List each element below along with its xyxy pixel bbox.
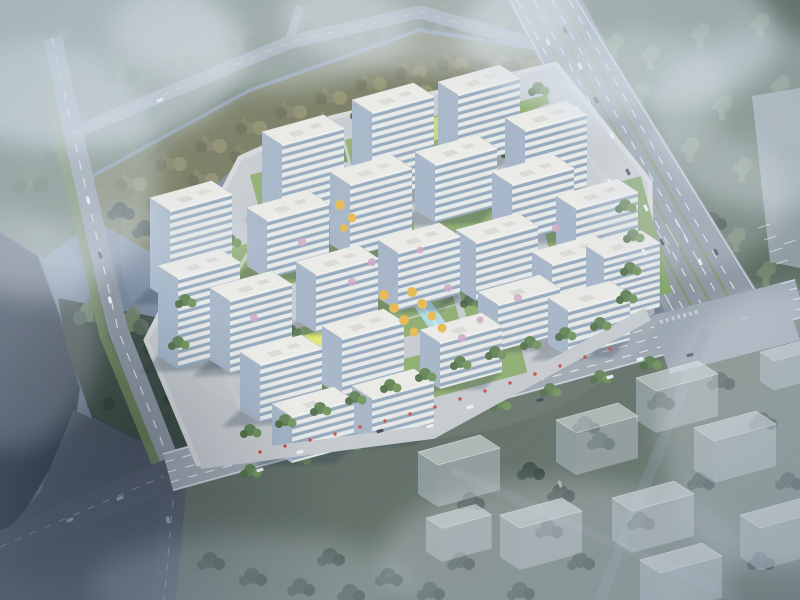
edge-haze-vignette — [0, 0, 800, 600]
aerial-rendering — [0, 0, 800, 600]
rendering-canvas — [0, 0, 800, 600]
atmosphere — [0, 0, 800, 600]
